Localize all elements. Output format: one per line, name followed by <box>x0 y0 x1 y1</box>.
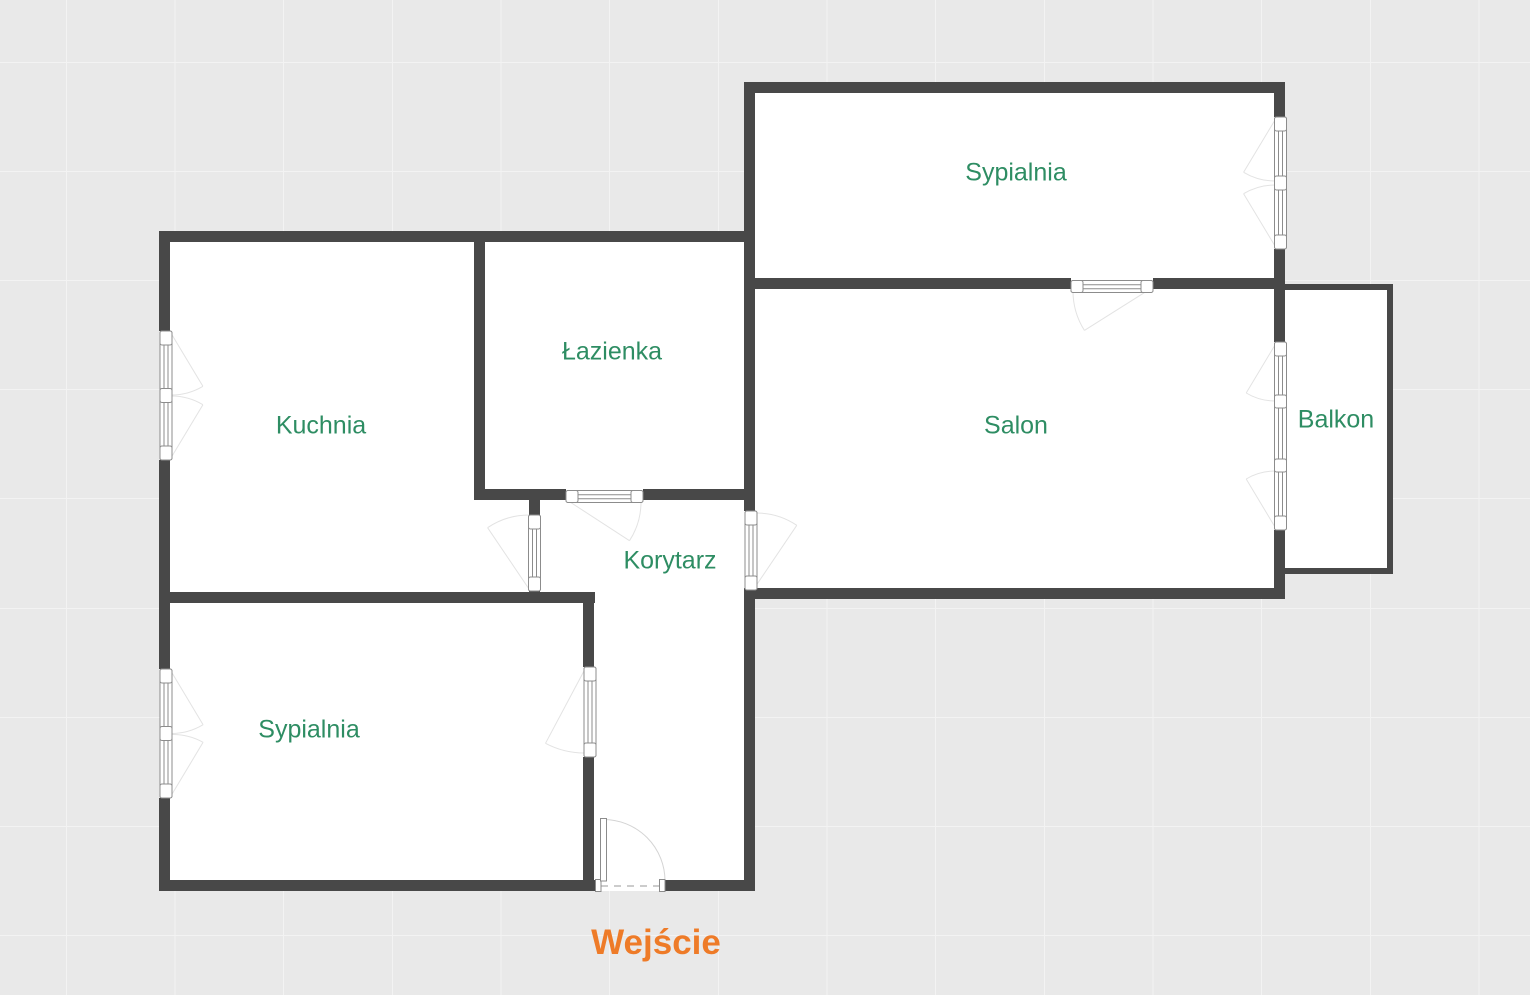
svg-text:Sypialnia: Sypialnia <box>258 716 360 744</box>
svg-text:Salon: Salon <box>984 412 1048 440</box>
svg-text:Sypialnia: Sypialnia <box>965 159 1067 187</box>
svg-text:Balkon: Balkon <box>1298 406 1374 434</box>
svg-text:Kuchnia: Kuchnia <box>276 412 366 440</box>
svg-text:Łazienka: Łazienka <box>562 338 662 366</box>
svg-text:Wejście: Wejście <box>591 923 721 962</box>
svg-text:Korytarz: Korytarz <box>623 547 716 575</box>
